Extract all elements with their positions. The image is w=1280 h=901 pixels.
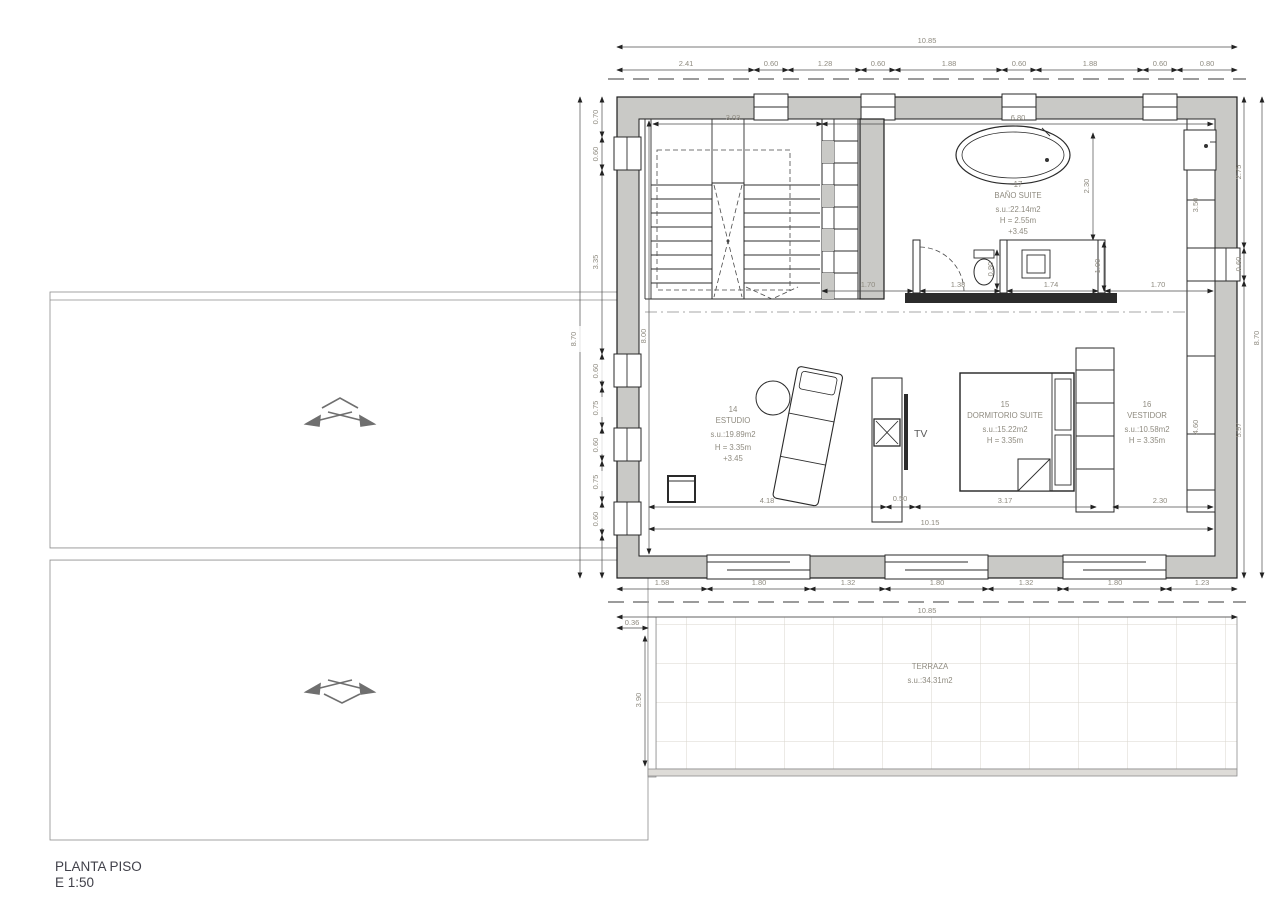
room-height: H = 3.35m	[1129, 436, 1165, 445]
dim-label: 2.30	[1082, 179, 1091, 194]
dim-label: 3.35	[591, 255, 600, 270]
tv-screen	[904, 394, 908, 470]
dim-label: 0.60	[1153, 59, 1168, 68]
washbasin-top	[1184, 130, 1216, 170]
terrace-bottom-edge	[648, 769, 1237, 776]
dim-chain-top: 10.85 2.41 0.60 1.28 0.60 1.88 0.60 1.88…	[608, 36, 1246, 79]
chair-round	[756, 381, 790, 415]
roof-panel-gap	[50, 548, 617, 560]
terrace-name: TERRAZA	[912, 662, 949, 671]
dim-label: 1.58	[655, 578, 670, 587]
roof-area	[50, 292, 648, 840]
dim-label: 10.15	[921, 518, 940, 527]
dim-chain-left: 0.70 0.60 3.35 0.60 0.75 0.60 0.75 0.60 …	[569, 97, 604, 578]
dim-label: 10.85	[918, 606, 937, 615]
room-name: ESTUDIO	[716, 416, 751, 425]
room-number: 14	[729, 405, 738, 414]
room-name: VESTIDOR	[1127, 411, 1167, 420]
room-height: H = 3.35m	[987, 436, 1023, 445]
roof-slope-arrow-up	[306, 398, 374, 426]
dim-label: 0.80	[986, 262, 995, 277]
room-level: +3.45	[1008, 227, 1028, 236]
dim-label: 0.80	[1200, 59, 1215, 68]
room-area: s.u.:22.14m2	[995, 205, 1040, 214]
dim-label: 1.28	[818, 59, 833, 68]
dim-label: 1.88	[942, 59, 957, 68]
dim-label: 0.75	[591, 401, 600, 416]
dim-label: 3.90	[634, 693, 643, 708]
room-number: 17	[1014, 180, 1023, 189]
room-number: 15	[1001, 400, 1010, 409]
dim-label: 10.85	[918, 36, 937, 45]
dim-label: 0.60	[1234, 257, 1243, 272]
plan-title: PLANTA PISO	[55, 859, 142, 874]
dim-label: 1.74	[1044, 280, 1059, 289]
dim-label: 5.97	[1234, 423, 1243, 438]
dim-label: 0.50	[893, 494, 908, 503]
room-number: 16	[1143, 400, 1152, 409]
stair-closet	[822, 119, 858, 299]
terrace-left-edge	[648, 617, 656, 777]
dim-label: 1.00	[1093, 259, 1102, 274]
dim-label: 2.41	[679, 59, 694, 68]
dim-label: 2.30	[1153, 496, 1168, 505]
room-name: DORMITORIO SUITE	[967, 411, 1043, 420]
dim-label: 6.80	[1011, 113, 1026, 122]
title-block: PLANTA PISO E 1:50	[55, 859, 142, 890]
dim-label: 1.32	[841, 578, 856, 587]
dim-label: 0.60	[591, 147, 600, 162]
stair-bath-wall	[860, 119, 884, 299]
room-height: H = 3.35m	[715, 443, 751, 452]
dim-label: 0.60	[591, 364, 600, 379]
room-area: s.u.:10.58m2	[1124, 425, 1169, 434]
dim-label: 0.60	[764, 59, 779, 68]
dim-label: 0.60	[591, 438, 600, 453]
terrace-floor	[656, 617, 1237, 769]
dim-label: 1.70	[861, 280, 876, 289]
bathtub	[956, 126, 1070, 184]
plan-scale: E 1:50	[55, 875, 94, 890]
bed-fold-corner	[1018, 459, 1050, 491]
terrace: TERRAZA s.u.:34.31m2	[648, 617, 1237, 777]
dim-label: 4.18	[760, 496, 775, 505]
room-name: BAÑO SUITE	[994, 191, 1041, 200]
room-area: s.u.:15.22m2	[982, 425, 1027, 434]
dim-label: 8.70	[569, 332, 578, 347]
dim-label: 0.36	[625, 618, 640, 627]
main-plan	[614, 94, 1240, 579]
terrace-area: s.u.:34.31m2	[907, 676, 952, 685]
dim-label: 8.70	[1252, 331, 1261, 346]
dim-label: 1.38	[951, 280, 966, 289]
room-area: s.u.:19.89m2	[710, 430, 755, 439]
dim-label: 1.80	[930, 578, 945, 587]
windows-bottom	[707, 555, 1166, 579]
dim-label: 3.17	[998, 496, 1013, 505]
dim-label: 0.70	[591, 110, 600, 125]
dim-label: 1.70	[1151, 280, 1166, 289]
dim-label: 4.60	[1191, 420, 1200, 435]
wall-shelf	[668, 476, 695, 502]
dim-chain-right: 2.75 0.60 5.97 8.70	[1234, 97, 1262, 578]
wardrobe-column	[1076, 348, 1114, 512]
dim-label: 1.80	[752, 578, 767, 587]
dim-label: 1.32	[1019, 578, 1034, 587]
roof-panel-upper	[50, 292, 617, 548]
dim-label: 0.60	[591, 512, 600, 527]
dim-label: 2.75	[1234, 165, 1243, 180]
dim-label: 3.50	[1191, 198, 1200, 213]
roof-slope-arrow-down	[306, 680, 374, 703]
room-level: +3.45	[723, 454, 743, 463]
dim-label: 0.60	[871, 59, 886, 68]
dim-label: 0.75	[591, 475, 600, 490]
dim-label: 1.80	[1108, 578, 1123, 587]
dim-label: 1.23	[1195, 578, 1210, 587]
dim-label: 0.60	[1012, 59, 1027, 68]
floorplan-drawing: TERRAZA s.u.:34.31m2	[0, 0, 1280, 901]
tv-label: TV	[914, 428, 927, 440]
dim-label: 8.00	[639, 329, 648, 344]
room-height: H = 2.55m	[1000, 216, 1036, 225]
dim-label: 3.03	[726, 113, 741, 122]
right-closet-strip	[1184, 119, 1216, 512]
dim-label: 1.88	[1083, 59, 1098, 68]
